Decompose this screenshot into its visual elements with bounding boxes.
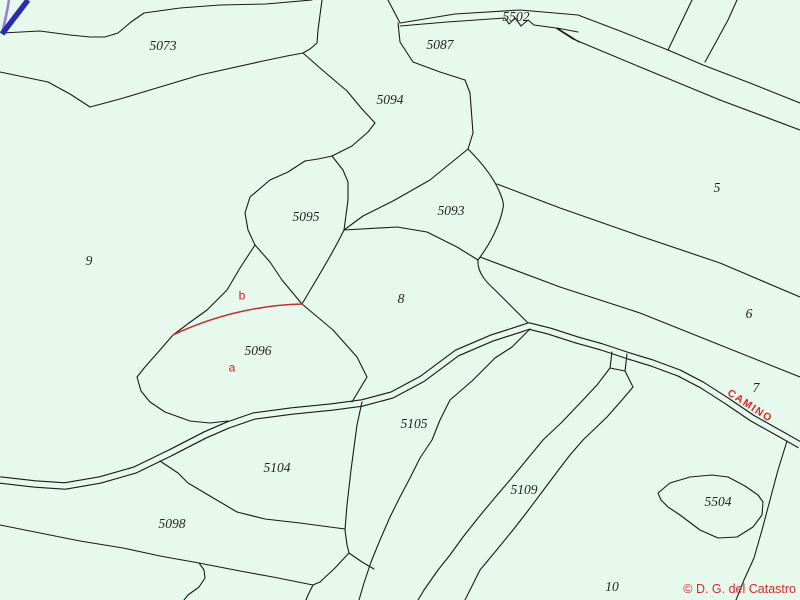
boundary-5502-arrow [557, 28, 579, 42]
attribution-text: © D. G. del Catastro [683, 582, 796, 596]
boundary-5087-east [465, 80, 473, 149]
boundary-5502-lower [400, 18, 800, 130]
road-camino [0, 326, 800, 486]
boundary-8-north [344, 227, 478, 260]
parcel-5504-outline [658, 475, 763, 538]
boundary-5095-east [332, 156, 348, 230]
map-canvas [0, 0, 800, 600]
boundary-5094-west-top [303, 0, 322, 53]
boundary-7-10 [736, 441, 787, 600]
boundary-5104-branch-b [306, 553, 349, 600]
boundary-5087-west [398, 23, 413, 62]
boundary-bottom-scurve [184, 563, 205, 600]
boundary-5087-south [413, 62, 465, 80]
boundary-5109-east [465, 371, 633, 600]
boundary-5095-west [245, 161, 305, 245]
boundary-5096-east [302, 304, 367, 402]
boundary-top-left [2, 0, 312, 37]
boundary-5095-8 [302, 230, 344, 304]
cadastral-map[interactable]: 50735502508750945095509398567b5096a51055… [0, 0, 800, 600]
boundary-5096-west [137, 245, 255, 423]
boundary-5098-5104 [160, 461, 345, 529]
boundary-topright-strip-w [668, 0, 692, 50]
boundary-5109-west [418, 368, 610, 600]
boundary-5094-west [303, 53, 375, 161]
boundary-5502-upper [388, 0, 800, 103]
boundary-5093-nw [344, 149, 468, 230]
parcel-boundaries [0, 0, 800, 600]
boundary-topright-strip-e [705, 0, 737, 62]
boundary-5098-south [0, 525, 313, 585]
boundary-b-8 [255, 245, 302, 304]
boundary-8-5105 [359, 329, 530, 600]
boundary-5104-branch-a [349, 553, 374, 569]
subparcel-divider-line [173, 304, 302, 335]
boundary-5073-9 [0, 53, 303, 107]
boundary-5104-east [345, 402, 362, 553]
boundary-5093-east [468, 149, 528, 323]
